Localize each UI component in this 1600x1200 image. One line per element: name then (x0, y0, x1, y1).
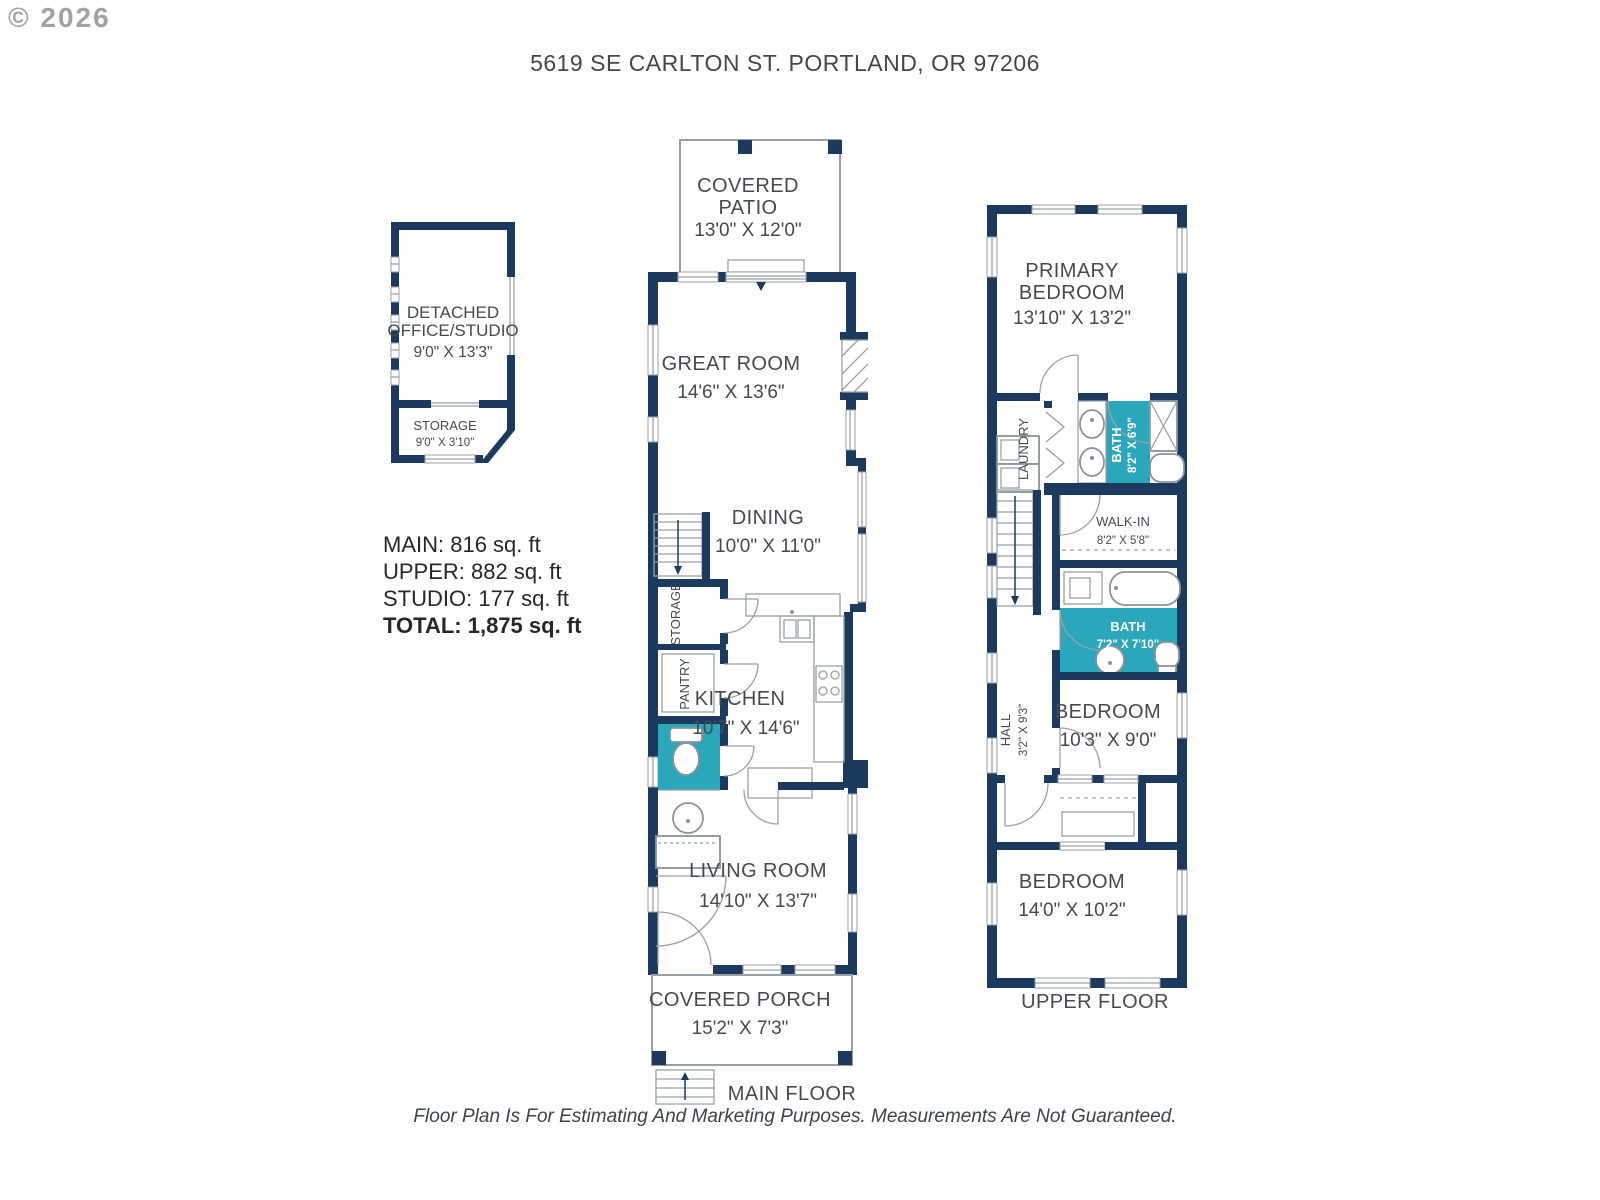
studio-storage-name: STORAGE (413, 418, 477, 433)
bath2-dims: 7'2" X 7'10" (1097, 639, 1159, 651)
porch-post (652, 1051, 666, 1065)
dining-dims: 10'0" X 11'0" (715, 536, 821, 557)
primary-bedroom-label-2: BEDROOM (1019, 282, 1125, 304)
bathtub (1110, 572, 1180, 605)
studio-name-line2: OFFICE/STUDIO (387, 321, 518, 340)
primary-bedroom-dims: 13'10" X 13'2" (1013, 308, 1131, 329)
bath2-label: BATH (1110, 619, 1145, 634)
stove (816, 666, 842, 702)
hall-label: HALL (998, 714, 1013, 747)
bedroom2-label: BEDROOM (1055, 701, 1161, 723)
porch-post (838, 1051, 852, 1065)
kitchen-living-wall (744, 782, 844, 824)
primary-bedroom-label-1: PRIMARY (1025, 260, 1119, 282)
copyright-watermark: © 2026 (8, 2, 111, 34)
walk-in-dims: 8'2" X 5'8" (1097, 535, 1149, 547)
area-summary: MAIN: 816 sq. ft UPPER: 882 sq. ft STUDI… (383, 531, 581, 639)
kitchen-dims: 10'7" X 14'6" (692, 718, 799, 739)
toilet-bowl (673, 743, 699, 775)
summary-studio: STUDIO: 177 sq. ft (383, 585, 581, 612)
kitchen-label: KITCHEN (695, 688, 786, 710)
studio-name-line1: DETACHED (407, 303, 499, 322)
primary-bedroom-wall (987, 355, 1187, 401)
dining-label: DINING (732, 507, 804, 529)
summary-upper: UPPER: 882 sq. ft (383, 558, 581, 585)
bedroom3-dims: 14'0" X 10'2" (1018, 900, 1125, 921)
pantry-label: PANTRY (677, 658, 692, 710)
entry-arrow (756, 282, 766, 291)
disclaimer-text: Floor Plan Is For Estimating And Marketi… (400, 1106, 1190, 1128)
main-floor-label: MAIN FLOOR (728, 1083, 856, 1105)
living-room-label: LIVING ROOM (689, 860, 827, 882)
living-room-dims: 14'10" X 13'7" (699, 891, 817, 912)
primary-bath-dims: 8'2" X 6'9" (1127, 417, 1139, 473)
sink (1080, 410, 1104, 438)
main-floor-plan: COVERED PATIO 13'0" X 12'0" GREAT ROOM 1… (628, 132, 868, 1117)
laundry-label: LAUNDRY (1016, 418, 1031, 480)
great-room-label: GREAT ROOM (662, 353, 801, 375)
main-bathroom (656, 724, 754, 946)
porch-dims: 15'2" X 7'3" (692, 1018, 789, 1039)
studio-dims: 9'0" X 13'3" (414, 344, 493, 361)
summary-total: TOTAL: 1,875 sq. ft (383, 612, 581, 639)
bathtub (1150, 454, 1184, 482)
upper-floor-label: UPPER FLOOR (1021, 991, 1169, 1013)
hall-dims: 3'2" X 9'3" (1018, 704, 1030, 756)
page-title: 5619 SE CARLTON ST. PORTLAND, OR 97206 (400, 50, 1170, 77)
porch-label: COVERED PORCH (649, 989, 831, 1011)
great-room-dims: 14'6" X 13'6" (677, 382, 784, 403)
studio-floor-plan: DETACHED OFFICE/STUDIO 9'0" X 13'3" STOR… (383, 215, 523, 470)
utility-sink (673, 803, 703, 833)
patio-label-2: PATIO (718, 197, 777, 219)
storage-closet (648, 579, 758, 644)
studio-storage-dims: 9'0" X 3'10" (416, 437, 475, 449)
patio-dims: 13'0" X 12'0" (694, 220, 801, 241)
patio-post (738, 140, 752, 154)
patio-post (828, 140, 842, 154)
bedroom3-label: BEDROOM (1019, 871, 1125, 893)
pantry-closet (648, 644, 758, 724)
storage-label: STORAGE (668, 582, 683, 646)
upper-floor-plan: PRIMARY BEDROOM 13'10" X 13'2" LAUNDRY B… (960, 198, 1190, 1016)
sink (1080, 448, 1104, 476)
patio-label-1: COVERED (697, 175, 799, 197)
bedroom-closets (997, 775, 1187, 850)
main-stairs (654, 512, 710, 584)
toilet-base (1158, 666, 1176, 673)
primary-bath-label: BATH (1109, 427, 1124, 462)
fireplace (842, 340, 868, 392)
walk-in-label: WALK-IN (1096, 514, 1150, 529)
summary-main: MAIN: 816 sq. ft (383, 531, 581, 558)
front-door (658, 912, 711, 965)
floor-plan-page: © 2026 5619 SE CARLTON ST. PORTLAND, OR … (0, 0, 1600, 1200)
bedroom2-dims: 10'3" X 9'0" (1060, 730, 1157, 751)
upper-stairs (997, 490, 1041, 615)
